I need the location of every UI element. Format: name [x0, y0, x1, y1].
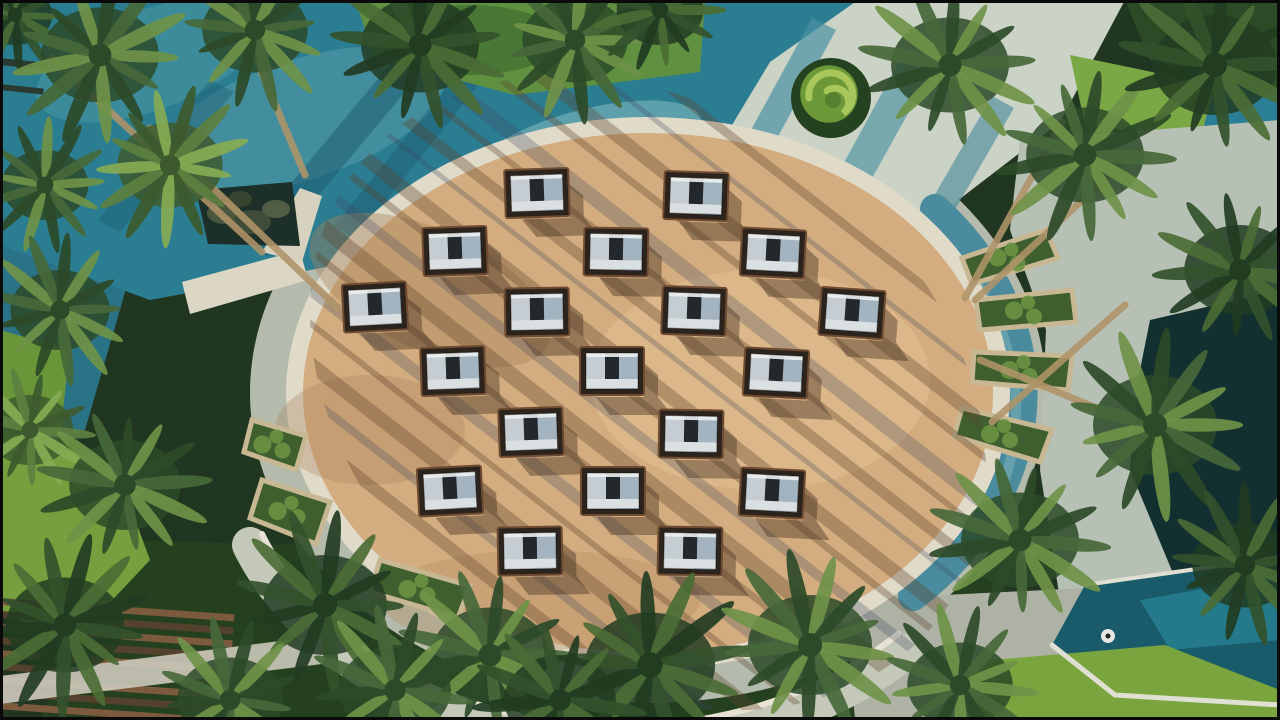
- cabana-foot-mattress: [511, 320, 563, 330]
- palm-crown-center: [8, 8, 22, 22]
- cabana-foot-mattress: [504, 559, 556, 569]
- palm-crown-center: [1143, 413, 1167, 437]
- cabana-foot-mattress: [664, 559, 716, 569]
- palm-crown-center: [384, 679, 406, 701]
- palm-crown-center: [22, 422, 39, 439]
- shrub: [415, 574, 429, 588]
- cabana-center-bar: [609, 234, 623, 262]
- cabana-center-bar: [605, 353, 619, 381]
- palm-crown-center: [313, 593, 337, 617]
- palm-crown-center: [1074, 144, 1097, 167]
- shrub: [981, 425, 999, 443]
- cabana-top-lip: [587, 473, 639, 477]
- shrub: [1002, 432, 1018, 448]
- cabana-center-bar: [530, 294, 544, 322]
- cabana-center-bar: [683, 533, 697, 561]
- palm-crown-center: [1009, 529, 1032, 552]
- shrub: [1021, 296, 1035, 310]
- shrub: [399, 580, 417, 598]
- cabana-top-lip: [586, 353, 638, 357]
- cabana-center-bar: [606, 473, 620, 501]
- cabana-foot-mattress: [590, 260, 642, 270]
- boulder-3: [262, 200, 290, 218]
- palm-crown-center: [114, 474, 136, 496]
- shrub: [1017, 355, 1031, 369]
- shrub: [1005, 302, 1023, 320]
- bush-core: [825, 92, 841, 108]
- palm-crown-center: [50, 300, 69, 319]
- cabana-foot-mattress: [505, 439, 557, 450]
- cabana-foot-mattress: [667, 318, 719, 329]
- cabana-foot-mattress: [429, 258, 481, 269]
- scene-svg: [0, 0, 1280, 720]
- palm-crown-center: [220, 690, 240, 710]
- palm-crown-center: [939, 54, 962, 77]
- palm-crown-center: [1203, 53, 1227, 77]
- palm-crown-center: [798, 633, 822, 657]
- shrub: [275, 443, 291, 459]
- palm-crown-center: [1229, 259, 1251, 281]
- palm-crown-center: [245, 20, 265, 40]
- shrub: [270, 430, 284, 444]
- cabana-foot-mattress: [669, 203, 721, 214]
- cabana-foot-mattress: [665, 442, 717, 452]
- pool-float-center: [1106, 634, 1111, 639]
- palm-crown-center: [652, 2, 669, 19]
- cabana-foot-mattress: [586, 379, 638, 388]
- shrub: [1026, 309, 1042, 325]
- shrub: [1005, 243, 1019, 257]
- shrub: [997, 419, 1011, 433]
- palm-crown-center: [479, 644, 502, 667]
- palm-crown-center: [409, 34, 432, 57]
- shrub: [285, 496, 299, 510]
- palm-crown-center: [54, 614, 77, 637]
- cabana-foot-mattress: [587, 499, 639, 508]
- planter: [976, 290, 1076, 330]
- topiary-bush: [791, 58, 871, 138]
- cabana-center-bar: [523, 533, 537, 561]
- palm-crown-center: [37, 177, 54, 194]
- palm-crown-center: [1235, 555, 1255, 575]
- cabana-foot-mattress: [427, 378, 479, 389]
- cabana-center-bar: [684, 416, 698, 444]
- cabana-foot-mattress: [511, 200, 563, 211]
- palm-crown-center: [160, 155, 180, 175]
- shrub: [254, 436, 272, 454]
- palm-crown-center: [549, 689, 571, 711]
- palm-crown-center: [950, 675, 970, 695]
- planter: [972, 352, 1072, 390]
- aerial-photo: [0, 0, 1280, 720]
- palm-crown-center: [565, 30, 585, 50]
- shrub: [269, 502, 287, 520]
- palm-crown-center: [637, 652, 662, 677]
- palm-crown-center: [89, 44, 112, 67]
